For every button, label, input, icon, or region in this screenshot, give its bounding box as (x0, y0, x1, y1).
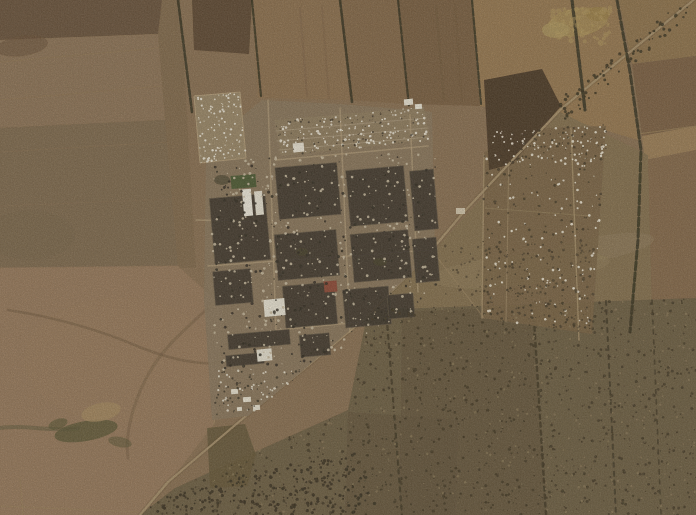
satellite-view (0, 0, 696, 515)
grain-overlay (0, 0, 696, 515)
satellite-image (0, 0, 696, 515)
